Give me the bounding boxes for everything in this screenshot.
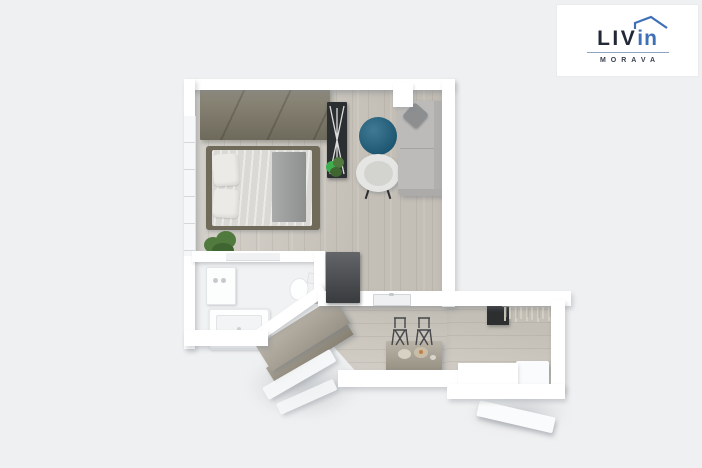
jar-icon (430, 355, 436, 360)
brand-accent-wrap: in (637, 28, 658, 49)
round-rug (359, 117, 397, 155)
wall-hall-bottom (447, 384, 565, 399)
brand-subtitle: MORAVA (595, 57, 660, 64)
brand-logo: LIV in (597, 28, 658, 49)
faucet-icon (389, 293, 394, 296)
bathroom-door-threshold (226, 253, 280, 261)
wall-pier (393, 83, 413, 107)
wall-corridor-bottom (338, 370, 462, 387)
desk-plant-icon (326, 157, 344, 179)
washer-knob (221, 278, 226, 283)
roof-icon (633, 15, 669, 31)
sofa-seat-seam (400, 148, 434, 149)
bed-blanket (272, 152, 306, 222)
washer-knob (213, 278, 218, 283)
brand-name-main: LIV (597, 28, 637, 49)
bar-stool-icon (414, 316, 434, 347)
wall-bathroom-bottom (184, 330, 268, 346)
floorplan-render: LIV in MORAVA (0, 0, 702, 468)
kitchen-sink (373, 294, 411, 306)
washing-machine (206, 267, 236, 305)
logo-divider (587, 52, 669, 53)
window-bedroom (183, 116, 196, 256)
armchair-seat (364, 161, 393, 186)
sofa (398, 101, 445, 196)
wall-hall-right (551, 300, 565, 392)
food-icon (419, 350, 423, 354)
logo-card: LIV in MORAVA (557, 5, 698, 76)
armchair (356, 154, 400, 192)
pillow (212, 188, 239, 218)
bar-stool-icon (390, 316, 410, 347)
wall-bedroom-bathroom (192, 251, 324, 262)
wall-right-living (442, 79, 455, 307)
sofa-base (398, 189, 445, 196)
plant-leaf (330, 167, 342, 177)
wardrobe (200, 88, 330, 140)
plate-icon (398, 349, 411, 359)
pillow (212, 153, 240, 187)
fridge-cabinet (326, 252, 360, 303)
wall-top (186, 79, 454, 90)
